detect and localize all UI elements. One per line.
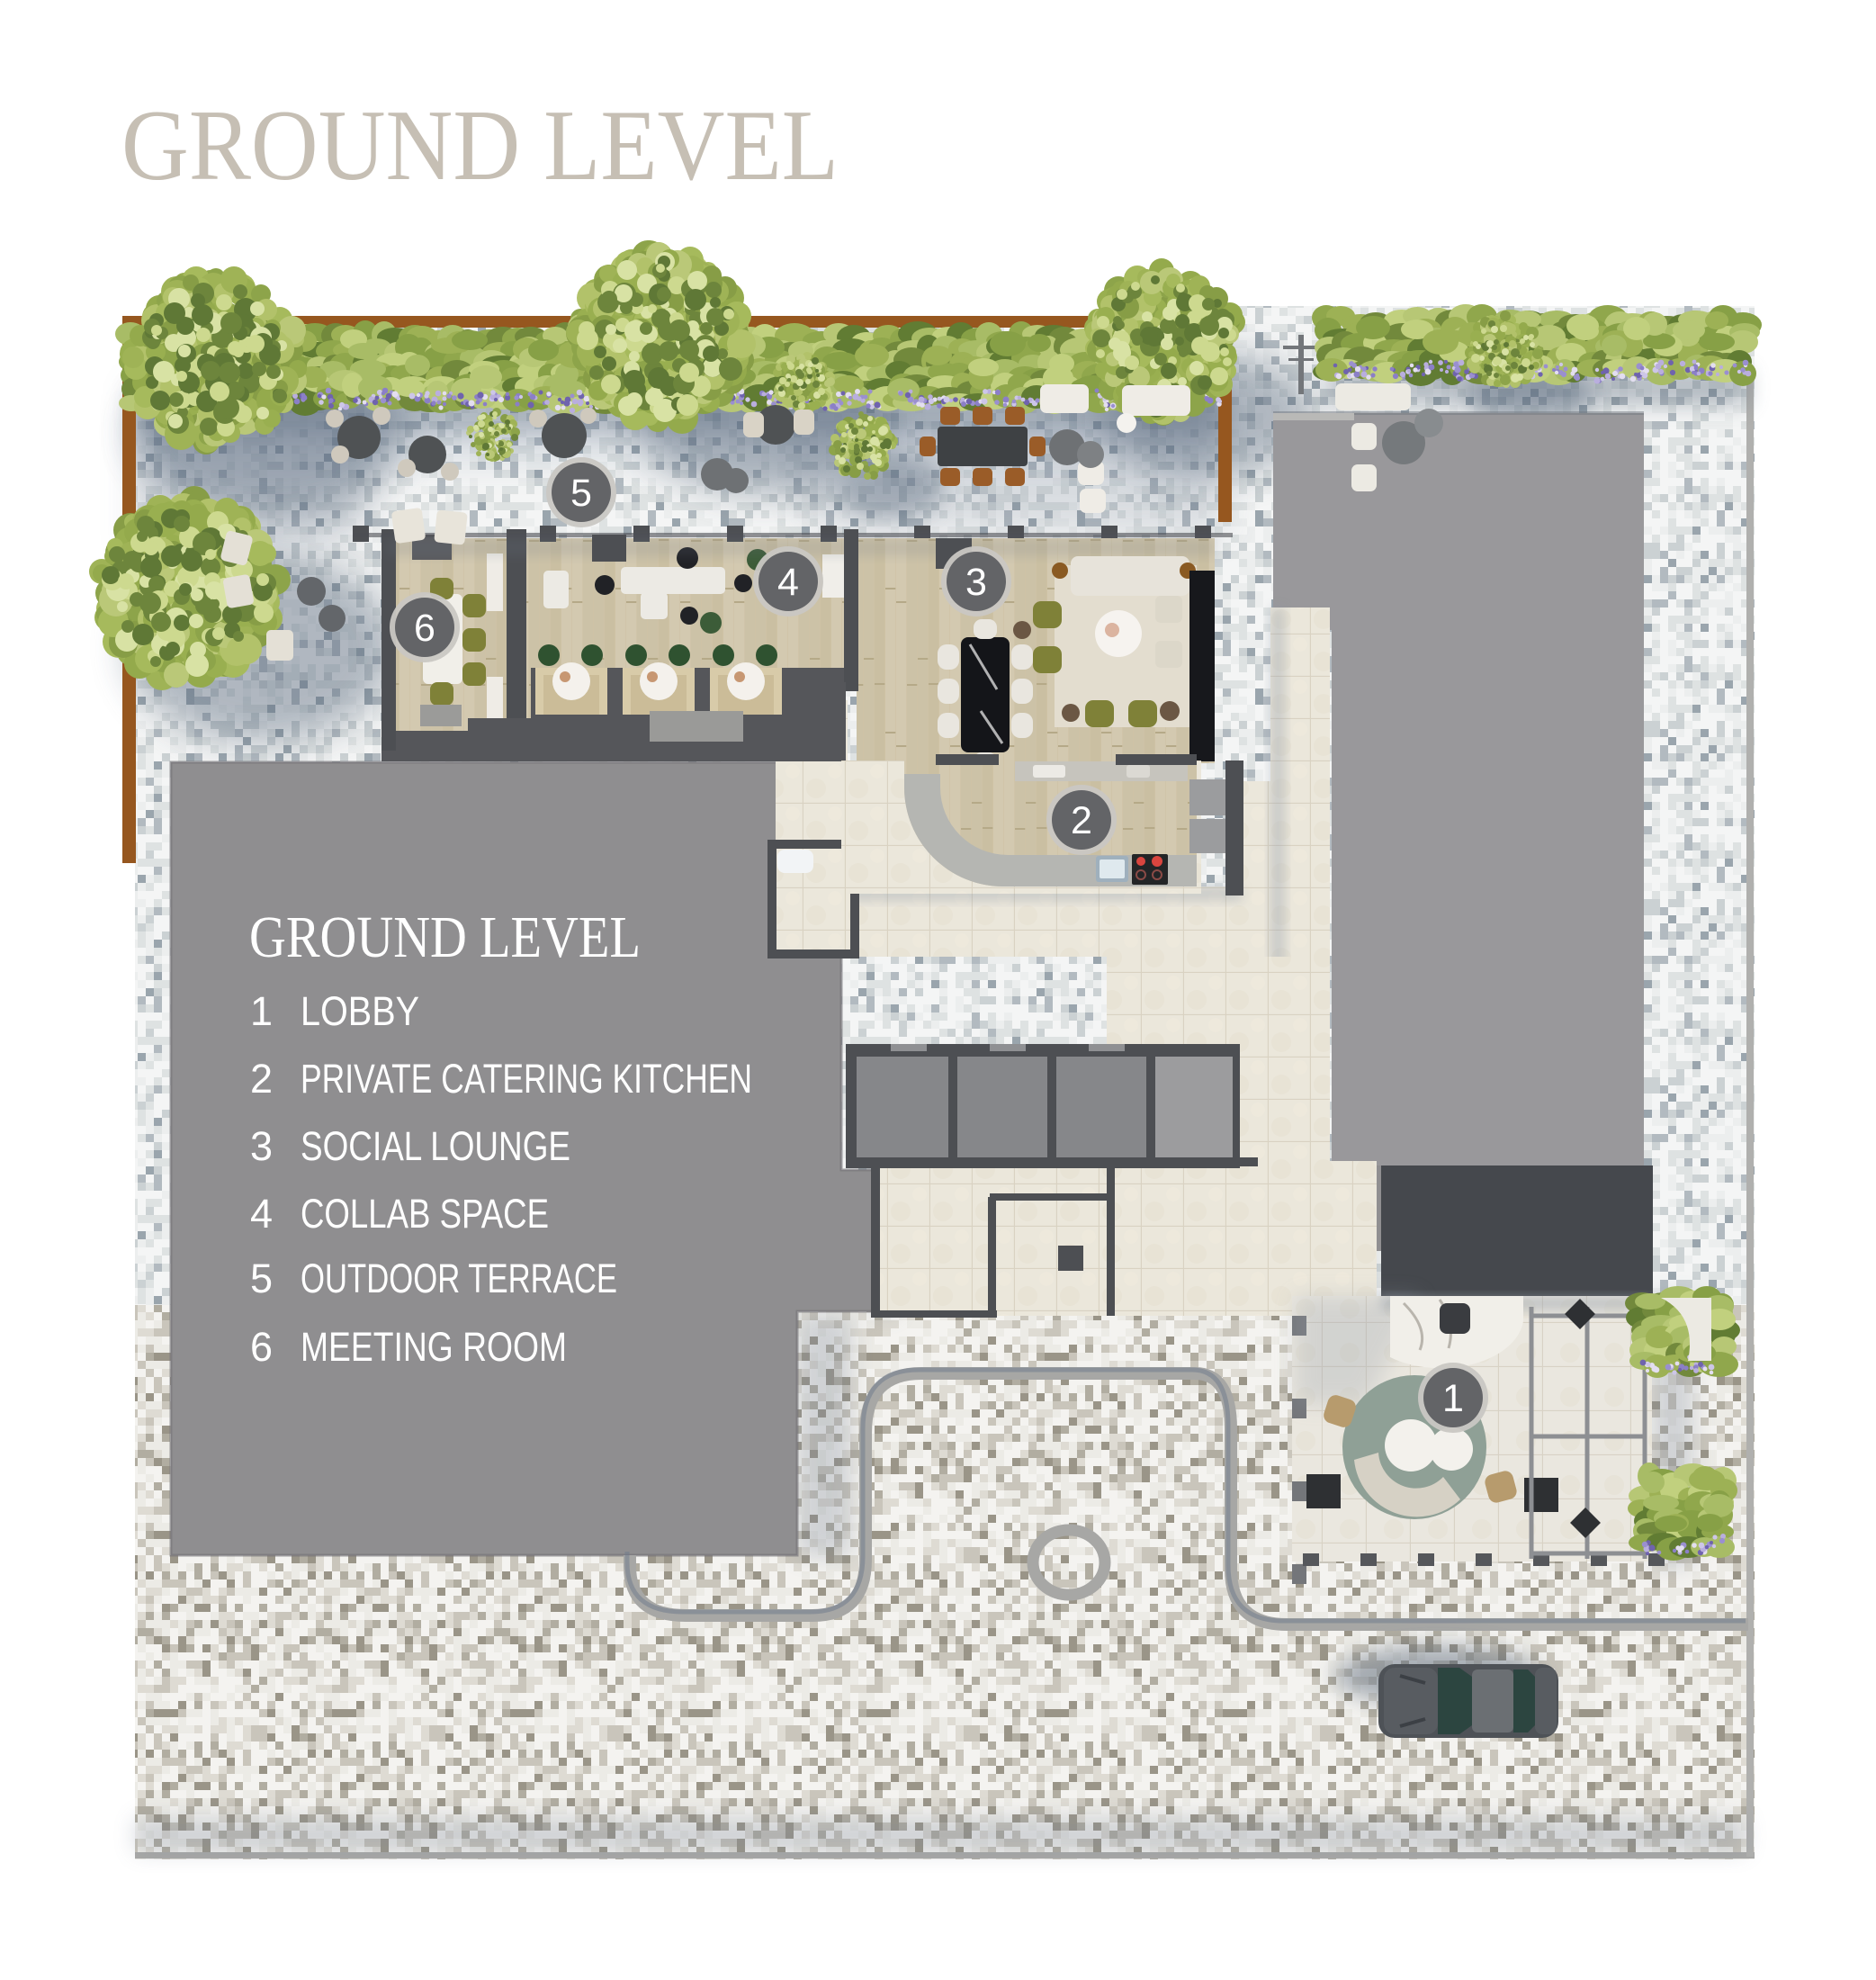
svg-text:GROUND LEVEL: GROUND LEVEL (121, 90, 839, 202)
